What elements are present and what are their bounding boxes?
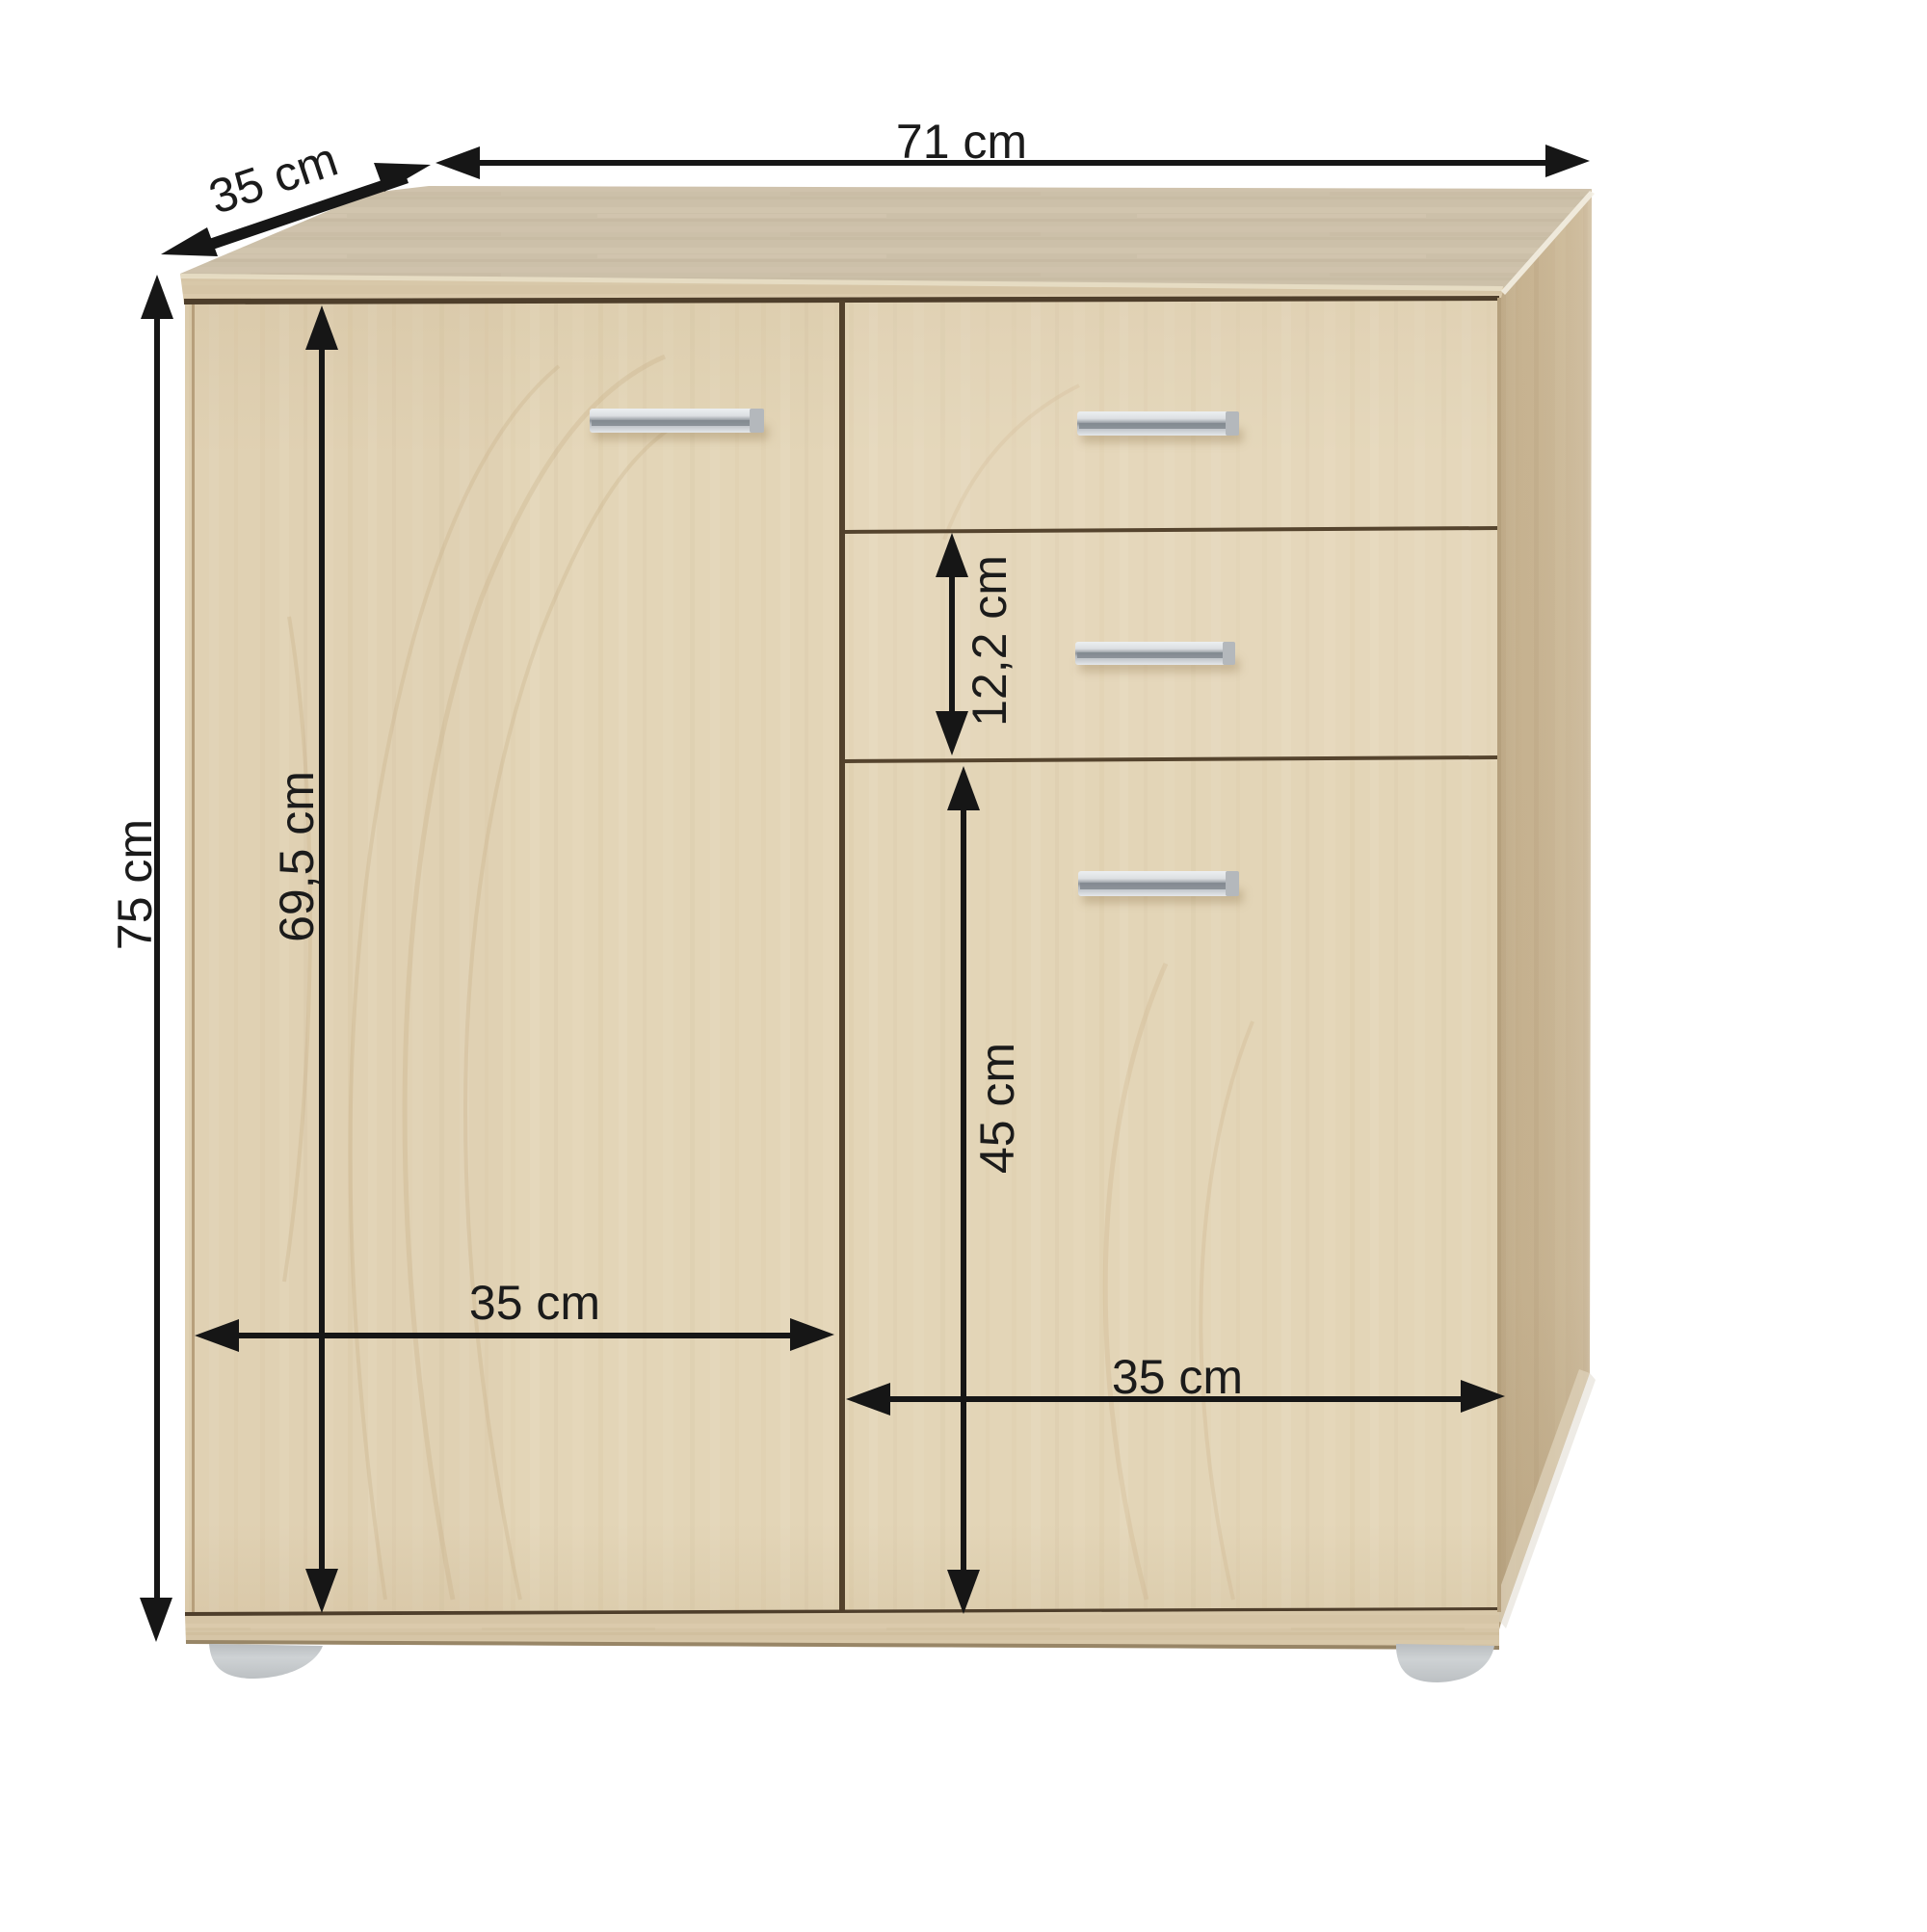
svg-text:45 cm: 45 cm bbox=[970, 1043, 1024, 1174]
svg-text:69,5 cm: 69,5 cm bbox=[270, 771, 324, 942]
svg-text:12,2 cm: 12,2 cm bbox=[963, 555, 1016, 727]
svg-text:71 cm: 71 cm bbox=[896, 115, 1027, 169]
svg-text:35 cm: 35 cm bbox=[1112, 1350, 1243, 1404]
svg-text:75 cm: 75 cm bbox=[108, 819, 162, 950]
svg-text:35 cm: 35 cm bbox=[469, 1276, 600, 1330]
